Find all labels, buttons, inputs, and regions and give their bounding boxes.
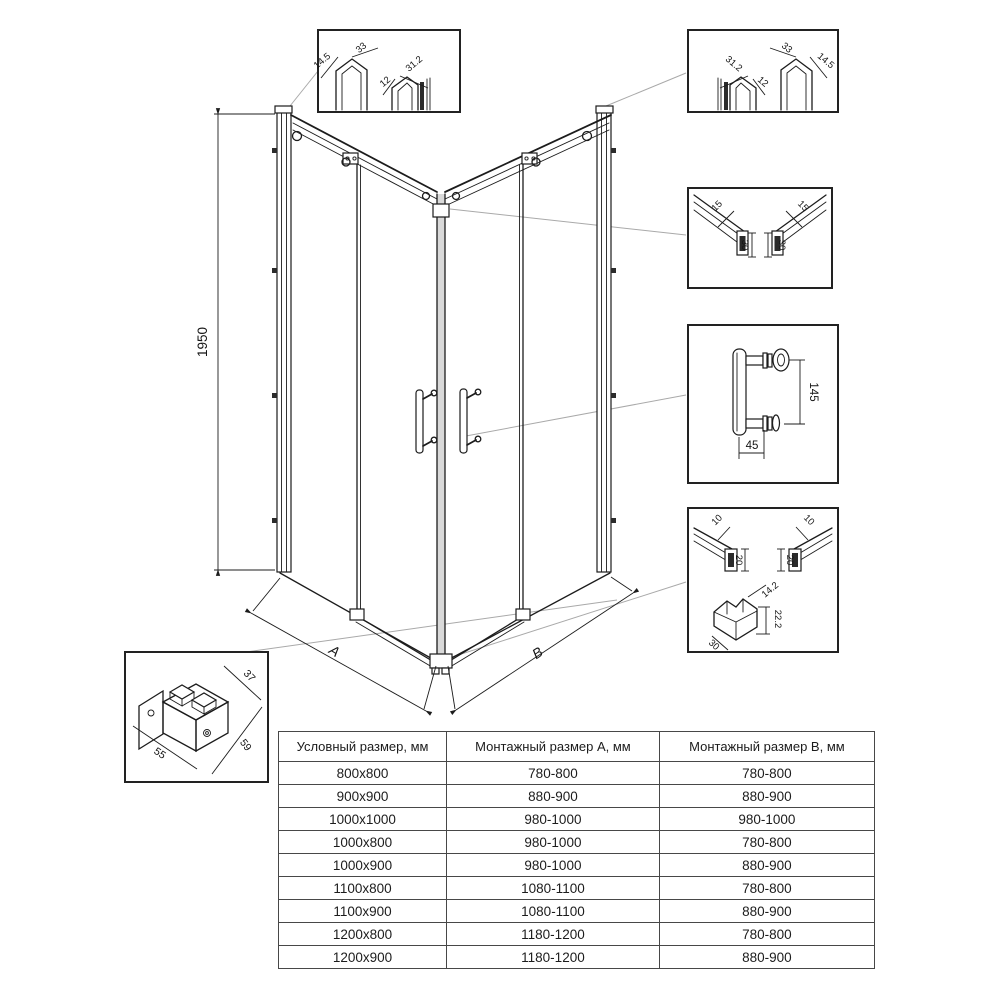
col-header-nominal-size: Условный размер, мм — [279, 732, 447, 762]
table-cell: 980-1000 — [447, 808, 660, 831]
table-cell: 1080-1100 — [447, 900, 660, 923]
right-door-handle — [460, 389, 481, 453]
table-cell: 900x900 — [279, 785, 447, 808]
dim-a-label: A — [326, 641, 343, 660]
col-header-mount-size-b: Монтажный размер В, мм — [659, 732, 874, 762]
table-row: 1000x900980-1000880-900 — [279, 854, 875, 877]
dim-label: 30 — [776, 240, 787, 251]
size-table: Условный размер, мм Монтажный размер А, … — [278, 731, 875, 969]
dimension-a: A — [251, 578, 436, 711]
table-cell: 780-800 — [659, 877, 874, 900]
dim-label: 20 — [784, 555, 795, 566]
dim-label: 145 — [807, 382, 819, 401]
col-header-mount-size-a: Монтажный размер А, мм — [447, 732, 660, 762]
table-cell: 980-1000 — [659, 808, 874, 831]
detail-corner-bracket: 55 59 37 — [125, 652, 268, 782]
table-header-row: Условный размер, мм Монтажный размер А, … — [279, 732, 875, 762]
table-cell: 1180-1200 — [447, 923, 660, 946]
table-cell: 880-900 — [659, 900, 874, 923]
detail-top-rail: 15 30 15 30 — [688, 188, 832, 288]
table-row: 800x800780-800780-800 — [279, 762, 875, 785]
leader-lines — [246, 66, 686, 657]
table-cell: 880-900 — [659, 785, 874, 808]
table-cell: 980-1000 — [447, 854, 660, 877]
height-dimension: 1950 — [195, 114, 275, 570]
left-door-handle — [416, 390, 437, 453]
dimension-b: B — [448, 577, 633, 710]
right-wing — [445, 115, 611, 667]
shower-enclosure-technical-drawing: 1950 A B — [0, 0, 1000, 1000]
size-table-body: 800x800780-800780-800900x900880-900880-9… — [279, 762, 875, 969]
detail-handle: 145 45 — [688, 325, 838, 483]
dim-label: 30 — [739, 240, 750, 251]
height-dim-label: 1950 — [195, 327, 210, 357]
table-cell: 1200x900 — [279, 946, 447, 969]
table-row: 900x900880-900880-900 — [279, 785, 875, 808]
table-cell: 880-900 — [659, 854, 874, 877]
table-row: 1200x8001180-1200780-800 — [279, 923, 875, 946]
left-wing — [280, 115, 437, 667]
table-row: 1000x1000980-1000980-1000 — [279, 808, 875, 831]
table-cell: 1180-1200 — [447, 946, 660, 969]
table-cell: 780-800 — [659, 923, 874, 946]
dim-label: 45 — [746, 440, 759, 452]
detail-bottom-rail-corner: 10 20 10 20 14.2 22.2 30 — [688, 508, 838, 653]
table-cell: 780-800 — [659, 831, 874, 854]
right-wall-profile — [596, 106, 616, 572]
dim-label: 20 — [733, 555, 744, 566]
size-table-container: Условный размер, мм Монтажный размер А, … — [278, 731, 875, 969]
table-cell: 1000x1000 — [279, 808, 447, 831]
table-cell: 880-900 — [447, 785, 660, 808]
table-cell: 1080-1100 — [447, 877, 660, 900]
table-cell: 1200x800 — [279, 923, 447, 946]
table-cell: 880-900 — [659, 946, 874, 969]
table-cell: 780-800 — [659, 762, 874, 785]
detail-wall-profile-left: 14.5 33 12 31.2 — [312, 30, 460, 112]
detail-wall-profile-right: 31.2 12 33 14.5 — [688, 30, 838, 112]
table-row: 1100x9001080-1100880-900 — [279, 900, 875, 923]
corner-post — [430, 194, 452, 674]
table-row: 1100x8001080-1100780-800 — [279, 877, 875, 900]
table-cell: 780-800 — [447, 762, 660, 785]
dim-label: 22.2 — [772, 610, 783, 629]
table-cell: 1100x900 — [279, 900, 447, 923]
left-wall-profile — [272, 106, 292, 572]
table-cell: 1000x800 — [279, 831, 447, 854]
table-row: 1200x9001180-1200880-900 — [279, 946, 875, 969]
table-row: 1000x800980-1000780-800 — [279, 831, 875, 854]
table-cell: 800x800 — [279, 762, 447, 785]
table-cell: 980-1000 — [447, 831, 660, 854]
table-cell: 1100x800 — [279, 877, 447, 900]
table-cell: 1000x900 — [279, 854, 447, 877]
